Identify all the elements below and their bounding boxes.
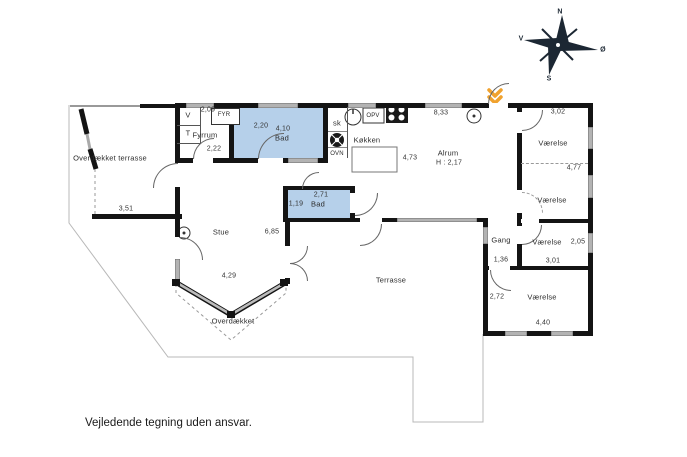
furnace-label: FYR [218, 112, 231, 118]
room-label-overdaekket: Overdækket [212, 317, 255, 326]
compass-east-label: Ø [600, 47, 606, 54]
dim-vaerelse-s-h: 2,72 [490, 294, 504, 301]
dishwasher-label: OPV [366, 113, 379, 119]
closet-sk-label: sk [333, 119, 341, 128]
windbreak-wall [81, 109, 87, 134]
closet-v-label: V [185, 111, 190, 120]
wall [285, 222, 290, 246]
door-opening [521, 219, 539, 223]
closet-partition [328, 131, 347, 132]
room-label-terrasse: Terrasse [376, 276, 406, 285]
dim-vaerelse-se-h: 2,05 [571, 239, 585, 246]
bay-window-glass [179, 284, 230, 314]
dim-vaerelse-s-w: 4,40 [536, 320, 550, 327]
dim-alrum-width: 8,33 [434, 110, 448, 117]
dim-bad1-sink: 2,20 [254, 123, 268, 130]
closet-partition [177, 143, 201, 144]
wall [483, 331, 593, 336]
floor-plan: Overdækket terrasse 3,51 V T 2,09 FYR Fy… [0, 0, 687, 457]
window [288, 158, 318, 163]
wall [323, 103, 328, 163]
window [588, 175, 593, 198]
dim-koekken: 4,73 [403, 155, 417, 162]
lamp-icon [467, 109, 481, 123]
vent-icon [330, 133, 344, 147]
room-label-alrum: Alrum [438, 149, 459, 158]
closet-t-label: T [186, 129, 191, 138]
closet-partition [328, 147, 347, 148]
compass-west-label: V [519, 36, 524, 43]
window [505, 331, 527, 336]
closet-ovn-label: OVN [330, 151, 344, 157]
bay-window-glass [232, 284, 283, 314]
window [425, 103, 462, 108]
window [397, 218, 477, 222]
room-label-stue: Stue [213, 228, 229, 237]
window [588, 233, 593, 253]
room-label-koekken: Køkken [354, 136, 381, 145]
dim-stue-bay: 4,29 [222, 273, 236, 280]
closet-partition [347, 107, 348, 158]
alrum-ceiling-note: H : 2,17 [436, 160, 462, 167]
kitchen-island [352, 147, 397, 172]
window [588, 127, 593, 149]
wall [283, 218, 355, 222]
room-label-fyrrum: Fyrrum [193, 131, 218, 140]
compass-rose [524, 15, 598, 75]
wall [92, 214, 182, 219]
wall [283, 186, 355, 190]
room-label-gang: Gang [491, 236, 510, 245]
room-label-vaerelse-se: Værelse [532, 238, 561, 247]
dim-vaerelse-se-w: 3,01 [546, 258, 560, 265]
door-opening [360, 218, 382, 222]
dim-fyrrum-top: 2,09 [201, 107, 215, 114]
windbreak-window [87, 134, 90, 149]
room-label-vaerelse-e: Værelse [537, 196, 566, 205]
room-label-vaerelse-s: Værelse [527, 293, 556, 302]
compass-north-label: N [557, 9, 562, 16]
room-label-bad1: Bad [275, 134, 289, 143]
window [348, 103, 376, 108]
wall [175, 187, 180, 237]
dim-bad1-width: 4,10 [276, 126, 290, 133]
dim-stue-width: 6,85 [265, 229, 279, 236]
room-label-vaerelse-ne: Værelse [538, 139, 567, 148]
disclaimer-text: Vejledende tegning uden ansvar. [85, 417, 252, 429]
room-label-overdaekket-terrasse: Overdækket terrasse [73, 154, 147, 163]
window [483, 227, 488, 244]
dim-gang: 1,36 [494, 257, 508, 264]
wall [172, 279, 180, 286]
dim-bad2-width: 2,71 [314, 192, 328, 199]
wall [175, 103, 180, 162]
wall [283, 186, 288, 222]
dim-fyrrum-height: 2,22 [207, 146, 221, 153]
window [258, 103, 298, 108]
window [551, 331, 573, 336]
dim-bad2-height: 1,19 [289, 201, 303, 208]
dim-vaerelse-e: 4,77 [567, 165, 581, 172]
compass-south-label: S [547, 76, 552, 83]
wall [280, 279, 288, 286]
dim-overdaekket-terrasse: 3,51 [119, 206, 133, 213]
closet-partition [177, 125, 201, 126]
plan-graphics [0, 0, 687, 457]
room-label-bad2: Bad [311, 200, 325, 209]
dim-vaerelse-ne: 3,02 [551, 109, 565, 116]
